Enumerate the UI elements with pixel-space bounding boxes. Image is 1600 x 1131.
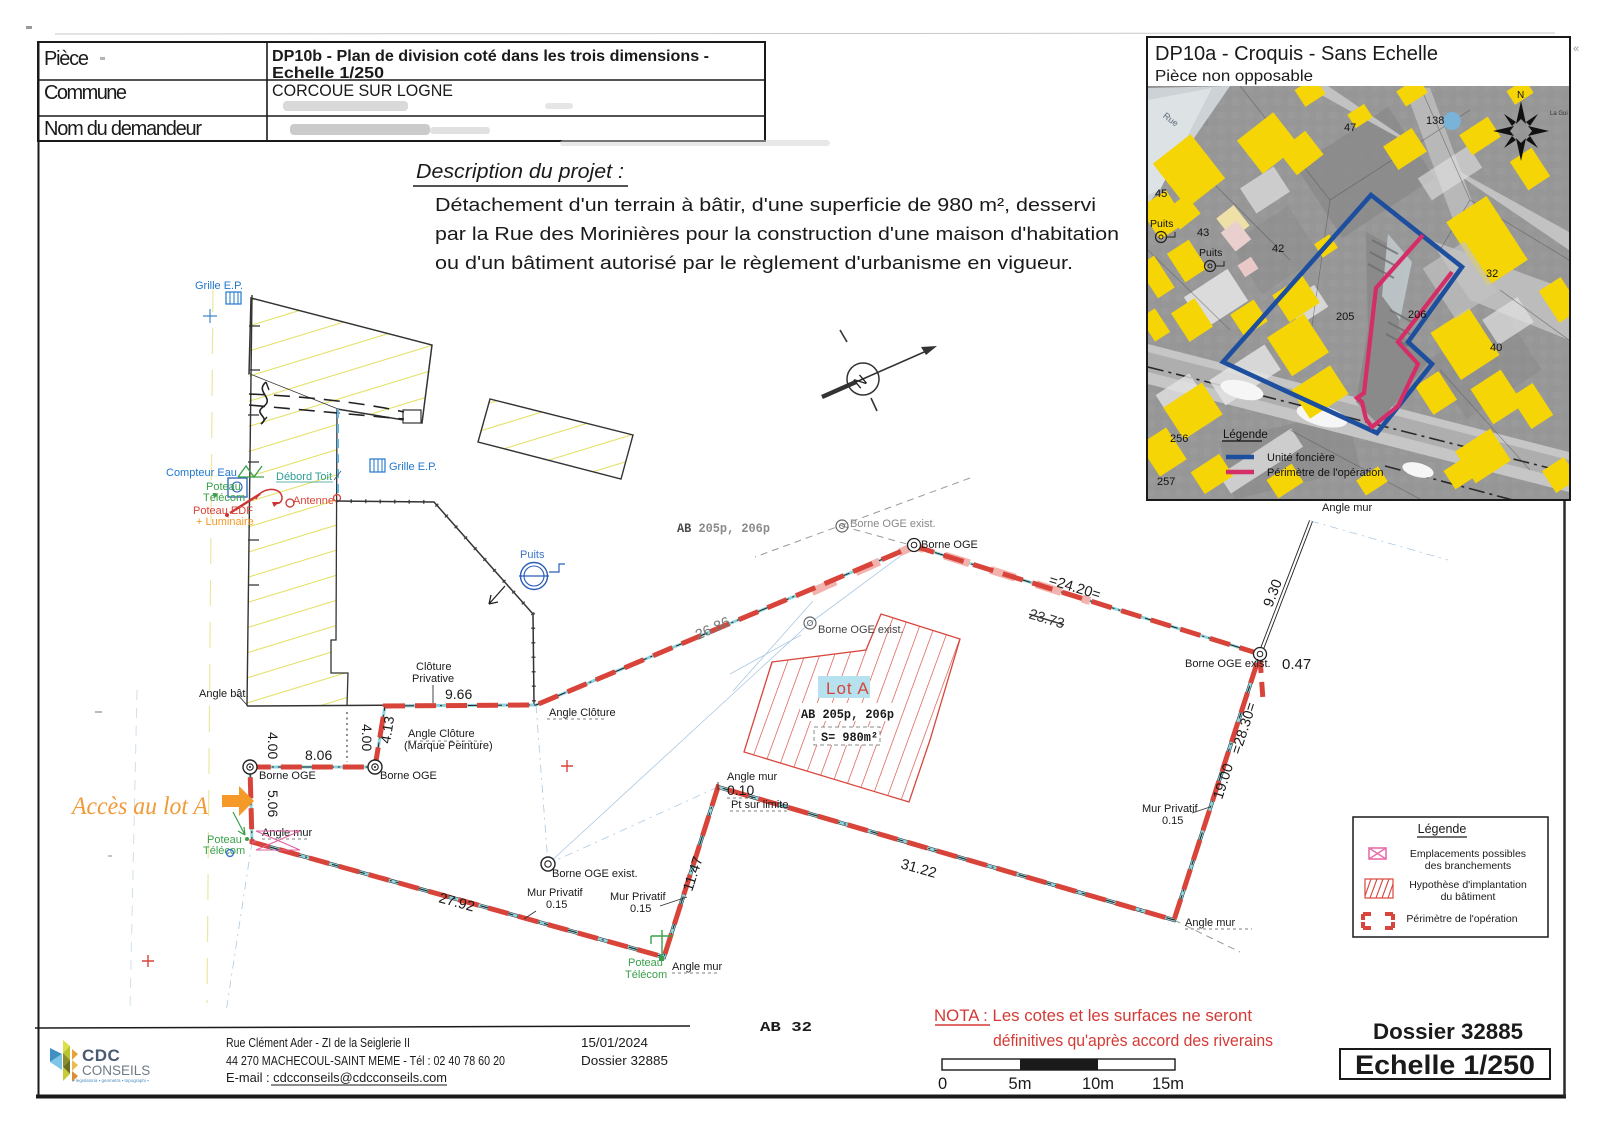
svg-text:Puits: Puits	[1150, 218, 1173, 230]
svg-text:Privative: Privative	[412, 673, 454, 685]
svg-text:CORCOUE SUR LOGNE: CORCOUE SUR LOGNE	[272, 82, 453, 100]
svg-text:4.00: 4.00	[265, 732, 281, 759]
svg-text:N: N	[851, 372, 871, 392]
svg-text:CONSEILS: CONSEILS	[82, 1063, 150, 1078]
svg-text:Puits: Puits	[1199, 247, 1222, 259]
svg-text:Pt sur limite: Pt sur limite	[731, 799, 788, 811]
svg-text:Description du projet :: Description du projet :	[416, 161, 624, 183]
svg-text:138: 138	[1426, 115, 1444, 127]
svg-text:La Gui: La Gui	[1550, 111, 1568, 117]
svg-text:40: 40	[1490, 342, 1502, 354]
svg-text:NOTA : Les cotes et les surfac: NOTA : Les cotes et les surfaces ne sero…	[934, 1007, 1252, 1025]
svg-text:Compteur Eau: Compteur Eau	[166, 467, 237, 479]
svg-text:0: 0	[938, 1075, 947, 1093]
svg-text:10m: 10m	[1082, 1075, 1114, 1093]
svg-text:9.66: 9.66	[445, 686, 472, 702]
svg-text:47: 47	[1344, 122, 1356, 134]
svg-text:Pièce: Pièce	[44, 48, 89, 70]
svg-text:Borne OGE: Borne OGE	[380, 770, 437, 782]
svg-text:Télécom: Télécom	[203, 845, 245, 857]
svg-text:205: 205	[1336, 311, 1354, 323]
svg-text:Hypothèse d'implantation: Hypothèse d'implantation	[1409, 879, 1527, 891]
svg-text:Borne OGE exist.: Borne OGE exist.	[850, 518, 936, 530]
svg-text:Emplacements possibles: Emplacements possibles	[1410, 848, 1526, 860]
svg-text:Clôture: Clôture	[416, 661, 451, 673]
svg-text:4.00: 4.00	[359, 724, 375, 751]
svg-text:Mur Privatif: Mur Privatif	[1142, 803, 1199, 815]
svg-text:Légende: Légende	[1223, 429, 1268, 441]
svg-text:Mur Privatif: Mur Privatif	[527, 887, 584, 899]
svg-text:=24.20=: =24.20=	[1047, 573, 1103, 604]
svg-text:26.86: 26.86	[693, 614, 733, 643]
svg-text:32: 32	[1486, 268, 1498, 280]
svg-text:15/01/2024: 15/01/2024	[581, 1036, 648, 1050]
svg-text:Pièce non opposable: Pièce non opposable	[1155, 68, 1313, 85]
svg-text:Périmètre de l'opération: Périmètre de l'opération	[1267, 467, 1383, 479]
svg-text:31.22: 31.22	[899, 856, 938, 881]
svg-text:Détachement d'un terrain à bât: Détachement d'un terrain à bâtir, d'une …	[435, 194, 1096, 215]
svg-text:257: 257	[1157, 476, 1175, 488]
svg-text:43: 43	[1197, 227, 1209, 239]
svg-text:Périmètre de l'opération: Périmètre de l'opération	[1406, 913, 1517, 925]
svg-text:Angle mur: Angle mur	[1185, 917, 1235, 929]
svg-text:0.15: 0.15	[630, 903, 651, 915]
svg-text:Borne OGE exist.: Borne OGE exist.	[552, 868, 638, 880]
svg-text:(Marque Peinture): (Marque Peinture)	[404, 740, 493, 752]
svg-text:19.00: 19.00	[1211, 762, 1237, 801]
svg-text:42: 42	[1272, 243, 1284, 255]
svg-text:Borne OGE exist.: Borne OGE exist.	[818, 624, 904, 636]
svg-text:définitives qu'après accord de: définitives qu'après accord des riverain…	[993, 1032, 1273, 1050]
svg-text:Télécom: Télécom	[203, 492, 245, 504]
svg-text:256: 256	[1170, 433, 1188, 445]
svg-text:206: 206	[1408, 309, 1426, 321]
svg-text:44 270 MACHECOUL-SAINT MEME -: 44 270 MACHECOUL-SAINT MEME - Tél : 02 4…	[226, 1054, 505, 1068]
svg-text:«: «	[1573, 43, 1579, 55]
svg-text:Poteau: Poteau	[628, 957, 663, 969]
svg-text:Borne OGE exist.: Borne OGE exist.	[1185, 658, 1271, 670]
svg-text:Echelle 1/250: Echelle 1/250	[1355, 1050, 1535, 1080]
svg-text:▪ legislatoria ▪ geometra ▪: ▪ legislatoria ▪ geometra ▪ topographi ▪	[73, 1078, 149, 1083]
svg-text:Echelle 1/250: Echelle 1/250	[272, 65, 384, 82]
svg-text:15m: 15m	[1152, 1075, 1184, 1093]
svg-text:Commune: Commune	[44, 82, 127, 104]
svg-text:Mur Privatif: Mur Privatif	[610, 891, 667, 903]
svg-text:Angle Clôture: Angle Clôture	[549, 707, 616, 719]
svg-text:DP10b - Plan de division coté: DP10b - Plan de division coté dans les t…	[272, 48, 709, 65]
svg-text:AB 205p, 206p: AB 205p, 206p	[801, 707, 894, 722]
svg-text:0.15: 0.15	[546, 899, 567, 911]
svg-text:Antenne: Antenne	[293, 495, 334, 507]
svg-text:0.47: 0.47	[1282, 656, 1311, 673]
svg-text:Unité foncière: Unité foncière	[1267, 452, 1335, 464]
svg-text:Grille E.P.: Grille E.P.	[195, 280, 243, 292]
svg-text:N: N	[1517, 90, 1524, 101]
svg-text:23.73: 23.73	[1027, 607, 1066, 633]
svg-text:0.10: 0.10	[727, 782, 754, 798]
svg-text:45: 45	[1155, 188, 1167, 200]
svg-text:ou d'un bâtiment autorisé par: ou d'un bâtiment autorisé par le règleme…	[435, 252, 1073, 273]
svg-text:Débord Toit: Débord Toit	[276, 471, 332, 483]
svg-text:4.13: 4.13	[377, 715, 397, 745]
svg-text:Rue Clément Ader - ZI de la Se: Rue Clément Ader - ZI de la Seiglerie II	[226, 1036, 410, 1050]
svg-text:Télécom: Télécom	[625, 969, 667, 981]
svg-text:AB 205p, 206p: AB 205p, 206p	[677, 521, 770, 536]
svg-text:0.15: 0.15	[1162, 815, 1183, 827]
svg-text:Angle mur: Angle mur	[1322, 502, 1372, 514]
svg-text:8.06: 8.06	[305, 747, 332, 763]
svg-text:Borne OGE: Borne OGE	[921, 539, 978, 551]
svg-text:Légende: Légende	[1418, 822, 1467, 836]
svg-text:11.47: 11.47	[681, 855, 707, 893]
svg-text:5m: 5m	[1009, 1075, 1032, 1093]
svg-text:DP10a - Croquis - Sans Echelle: DP10a - Croquis - Sans Echelle	[1155, 43, 1438, 65]
svg-text:Lot A: Lot A	[826, 679, 870, 698]
svg-text:5.06: 5.06	[265, 790, 281, 817]
svg-text:Dossier 32885: Dossier 32885	[1373, 1019, 1523, 1044]
svg-text:AB 32: AB 32	[760, 1021, 812, 1036]
svg-text:Nom du demandeur: Nom du demandeur	[44, 118, 202, 140]
svg-text:du bâtiment: du bâtiment	[1441, 891, 1496, 903]
svg-text:Angle Clôture: Angle Clôture	[408, 728, 475, 740]
svg-text:Grille E.P.: Grille E.P.	[389, 461, 437, 473]
svg-text:Borne OGE: Borne OGE	[259, 770, 316, 782]
svg-text:des branchements: des branchements	[1425, 860, 1511, 872]
svg-text:S= 980m²: S= 980m²	[821, 730, 878, 745]
svg-text:Accès au lot A: Accès au lot A	[70, 793, 209, 820]
svg-text:27.92: 27.92	[437, 890, 476, 915]
svg-text:Angle mur: Angle mur	[672, 961, 722, 973]
svg-text:+ Luminaire: + Luminaire	[196, 516, 254, 528]
svg-text:Puits: Puits	[520, 549, 545, 561]
svg-text:Dossier 32885: Dossier 32885	[581, 1054, 668, 1068]
svg-text:par la Rue des Morinières pour: par la Rue des Morinières pour la constr…	[435, 223, 1119, 244]
svg-text:E-mail : cdcconseils@cdcconsei: E-mail : cdcconseils@cdcconseils.com	[226, 1071, 447, 1085]
